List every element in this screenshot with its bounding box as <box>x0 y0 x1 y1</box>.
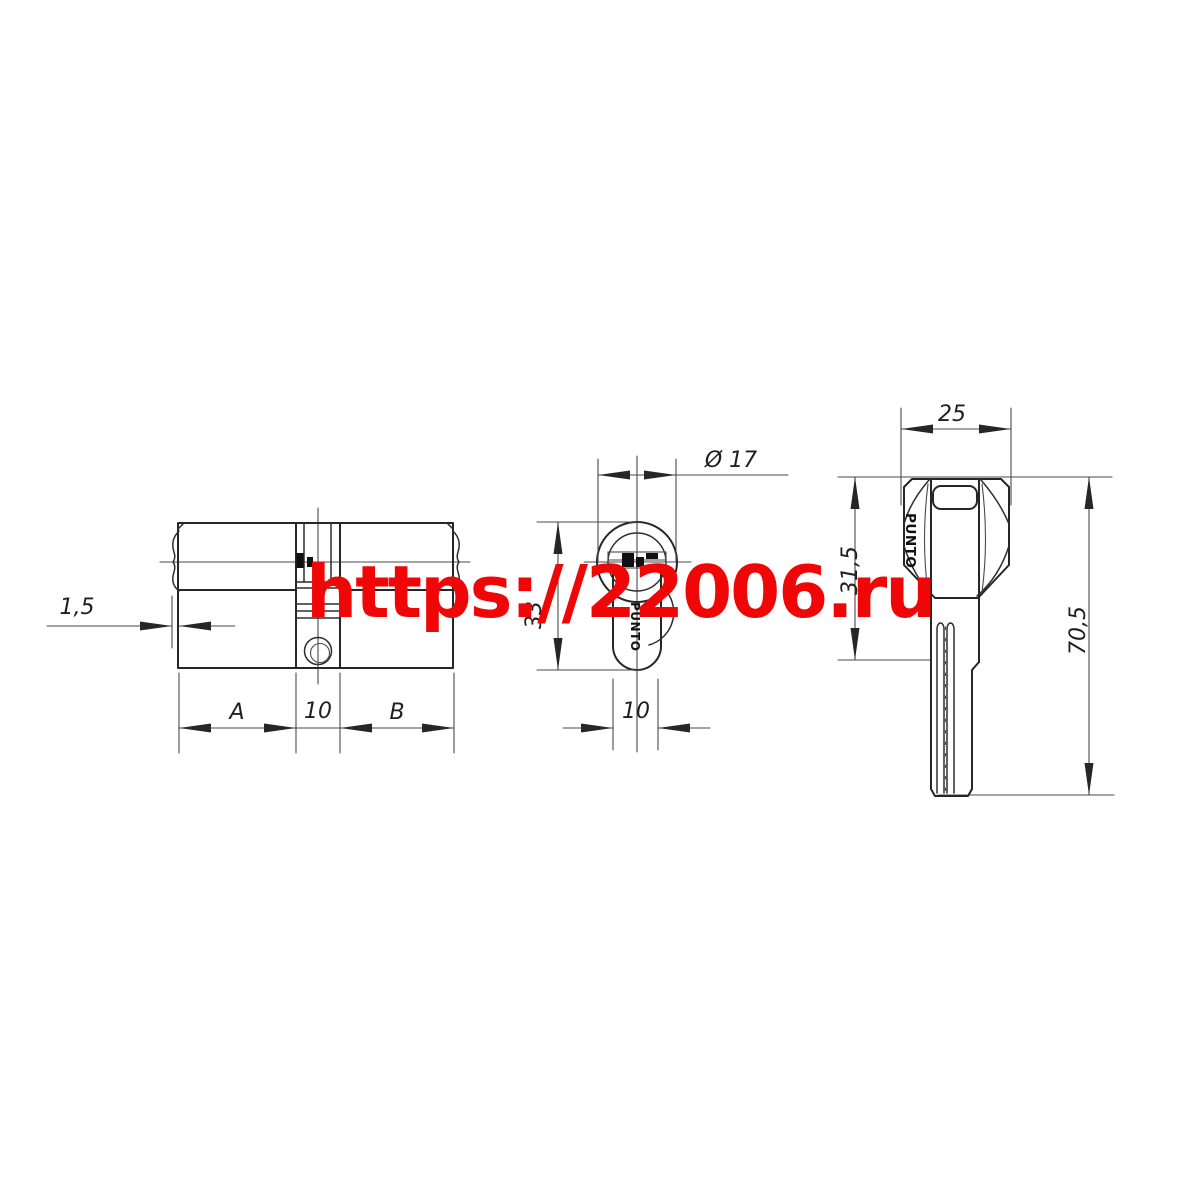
cam-screw-inner <box>311 644 330 663</box>
dim-cap-offset: 1,5 <box>47 595 235 648</box>
technical-drawing-canvas: 1,5 A 10 B <box>0 0 1200 1200</box>
watermark-url: https://22006.ru <box>306 556 934 628</box>
blade-groove-left <box>937 623 944 793</box>
dim-label-10-end: 10 <box>622 699 650 724</box>
dim-label-70-5: 70,5 <box>1066 606 1091 655</box>
dim-label-diameter: Ø 17 <box>704 448 757 473</box>
dim-diameter-17: Ø 17 <box>598 448 788 561</box>
dim-total-length: 70,5 <box>1066 477 1094 795</box>
dim-label-1-5: 1,5 <box>60 595 95 620</box>
dim-label-25: 25 <box>938 402 966 427</box>
dim-label-b: B <box>389 700 404 725</box>
dim-bottom-row: A 10 B <box>179 673 454 753</box>
key-blade <box>931 598 979 796</box>
blade-groove-right <box>947 623 954 793</box>
dim-label-10-side: 10 <box>304 699 332 724</box>
dim-head-width-25: 25 <box>901 402 1011 434</box>
dim-label-a: A <box>227 700 244 725</box>
